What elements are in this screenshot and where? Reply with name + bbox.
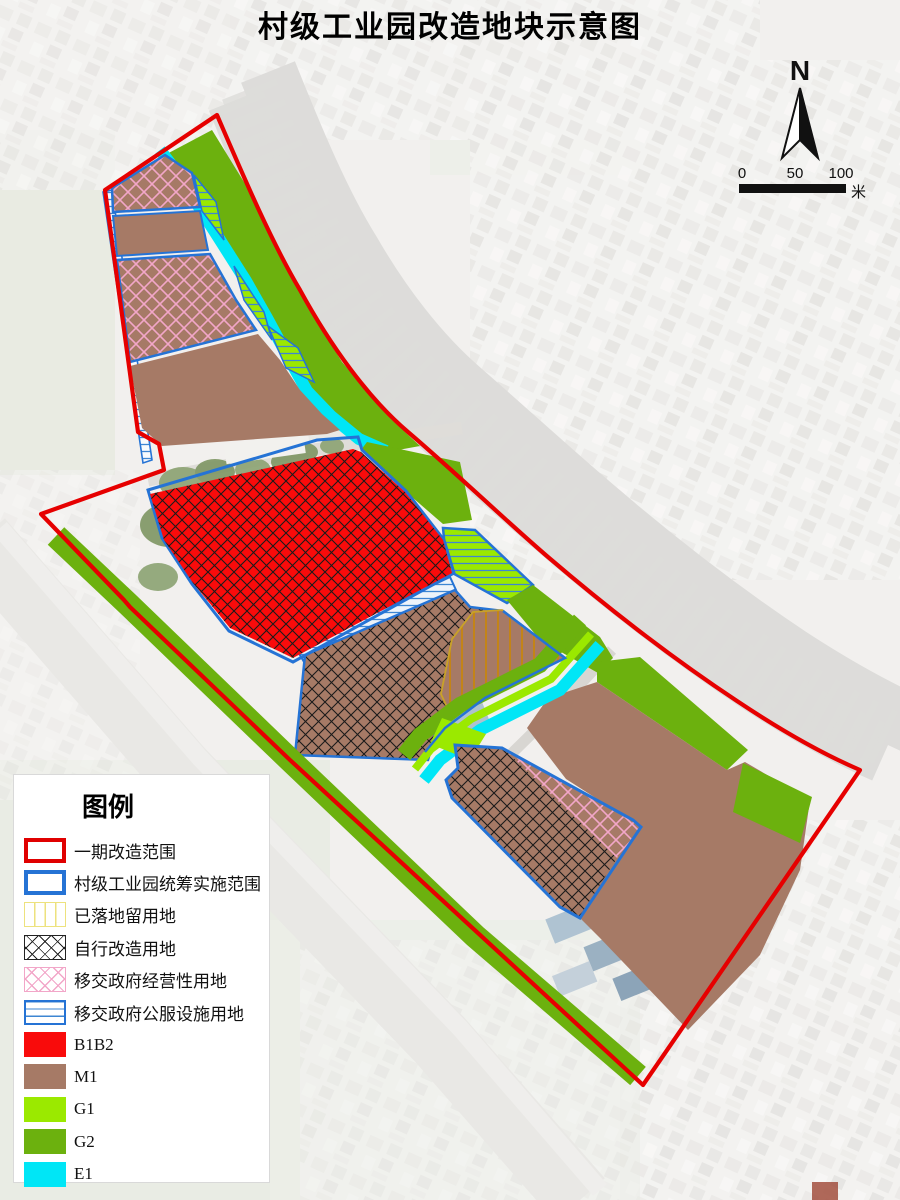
legend-item-b1b2: B1B2 <box>24 1028 263 1060</box>
legend-item-phase1: 一期改造范围 <box>24 834 263 866</box>
map-page: N 0 50 100 米 村级工业园改造地块示意图 图例 一期改造范围 村级工业… <box>0 0 900 1200</box>
legend-panel: 图例 一期改造范围 村级工业园统筹实施范围 已落地留用地 自行改造用地 移交政府… <box>13 774 270 1183</box>
legend-item-label: 移交政府经营性用地 <box>74 967 227 992</box>
legend-swatch-fill-light-green <box>24 1097 66 1122</box>
legend-swatch-outline-red <box>24 838 66 863</box>
page-title: 村级工业园改造地块示意图 <box>0 2 900 46</box>
legend-swatch-fill-green <box>24 1129 66 1154</box>
parcel-m1-band2 <box>113 211 208 256</box>
legend-swatch-fill-brown <box>24 1064 66 1089</box>
legend-item-label: 移交政府公服设施用地 <box>74 1000 244 1025</box>
legend-item-label: B1B2 <box>74 1035 114 1055</box>
legend-item-label: 已落地留用地 <box>74 902 176 927</box>
scale-tick-50: 50 <box>787 165 804 182</box>
legend-item-reserved: 已落地留用地 <box>24 899 263 931</box>
scale-unit: 米 <box>851 184 866 201</box>
legend-item-self-renewal: 自行改造用地 <box>24 931 263 963</box>
legend-item-e1: E1 <box>24 1158 263 1190</box>
legend-swatch-blue-hlines <box>24 1000 66 1025</box>
legend-item-statutory: 村级工业园统筹实施范围 <box>24 866 263 898</box>
north-label: N <box>790 55 810 86</box>
legend-item-label: G1 <box>74 1099 95 1119</box>
scale-bar-rect <box>739 184 846 193</box>
legend-item-label: E1 <box>74 1164 93 1184</box>
legend-item-g2: G2 <box>24 1126 263 1158</box>
legend-item-g1: G1 <box>24 1093 263 1125</box>
legend-swatch-yellow-vlines <box>24 902 66 927</box>
scale-tick-0: 0 <box>738 165 746 182</box>
legend-swatch-outline-blue <box>24 870 66 895</box>
legend-swatch-pink-crosshatch <box>24 967 66 992</box>
legend-swatch-fill-red <box>24 1032 66 1057</box>
legend-item-gov-commercial: 移交政府经营性用地 <box>24 964 263 996</box>
legend-item-label: 村级工业园统筹实施范围 <box>74 870 261 895</box>
legend-item-label: M1 <box>74 1067 98 1087</box>
legend-item-gov-public: 移交政府公服设施用地 <box>24 996 263 1028</box>
legend-swatch-fill-cyan <box>24 1162 66 1187</box>
legend-item-m1: M1 <box>24 1061 263 1093</box>
legend-item-label: 一期改造范围 <box>74 838 176 863</box>
legend-item-label: G2 <box>74 1132 95 1152</box>
legend-title: 图例 <box>82 787 263 824</box>
legend-item-label: 自行改造用地 <box>74 935 176 960</box>
legend-swatch-black-crosshatch <box>24 935 66 960</box>
scale-tick-100: 100 <box>828 165 853 182</box>
